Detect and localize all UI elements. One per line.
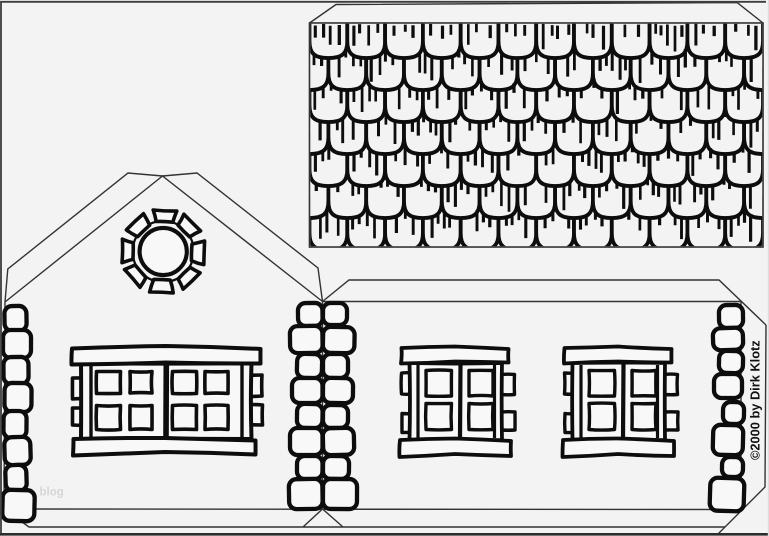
svg-text:©2000 by Dirk Klotz: ©2000 by Dirk Klotz <box>748 340 763 460</box>
svg-text:blog: blog <box>40 487 64 499</box>
